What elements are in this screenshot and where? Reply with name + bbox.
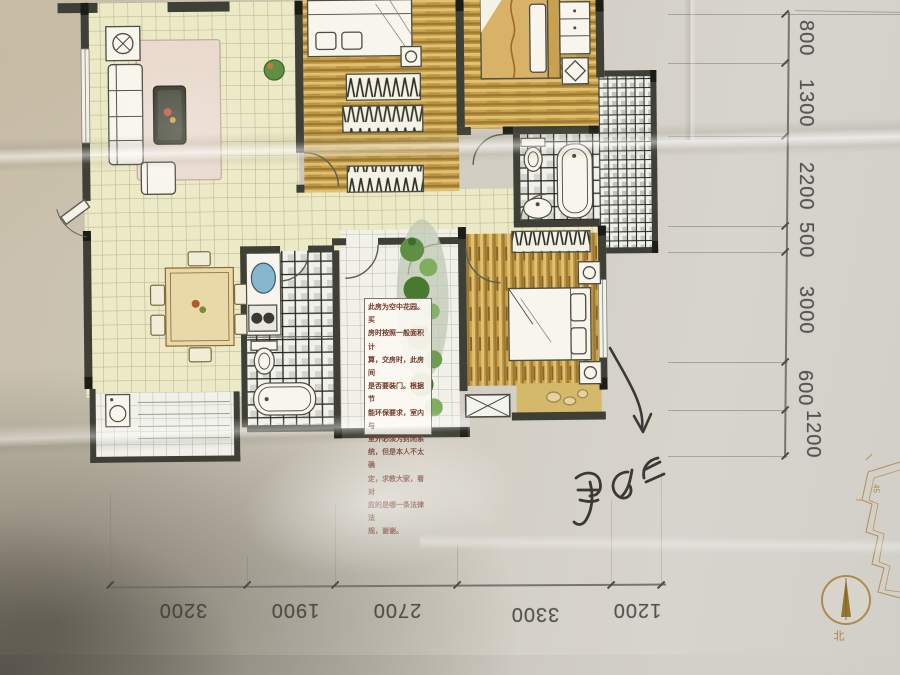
pillow: [571, 294, 586, 321]
kitchen-sink: [251, 263, 275, 293]
pillow: [342, 32, 362, 49]
compass-and-keyplan: 45 北: [810, 440, 900, 675]
dim-bottom-1200: 1200: [602, 598, 672, 621]
dim-right-600: 600: [793, 366, 816, 410]
toilet: [524, 147, 542, 171]
dim-right-1300: 1300: [794, 70, 817, 136]
nightstand: [578, 262, 600, 284]
floorplan-photo: 此房为空中花园。买 房时按照一般面积计 算，交房时，此房间 是否要装门。根据节 …: [0, 0, 900, 675]
dim-bottom-1900: 1900: [260, 598, 330, 621]
right-balcony-floor: [598, 76, 658, 250]
crease-vertical: [684, 0, 696, 140]
key-plan: [856, 454, 900, 598]
compass: 北: [822, 576, 870, 641]
hand-drawn-arrow: [610, 348, 642, 428]
pillow: [316, 32, 336, 49]
handwritten-annotation: [540, 320, 690, 540]
bathroom-sink: [524, 198, 552, 218]
annotation-note: 此房为空中花园。买 房时按照一般面积计 算，交房时，此房间 是否要装门。根据节 …: [364, 298, 432, 435]
toilet-tank: [521, 138, 545, 146]
bedroom-b-furniture: [480, 0, 590, 85]
headboard: [547, 0, 560, 78]
pillow: [530, 4, 547, 72]
dim-right-3000: 3000: [794, 268, 817, 352]
wardrobe: [343, 105, 423, 132]
keyplan-label: 45: [872, 484, 881, 493]
wardrobe: [347, 165, 423, 192]
wardrobe: [512, 231, 590, 253]
dim-bottom-2700: 2700: [362, 598, 432, 621]
dim-right-2200: 2200: [794, 146, 817, 226]
dim-right-500: 500: [794, 220, 817, 260]
sofa: [108, 64, 143, 164]
handwritten-characters: [574, 458, 664, 524]
compass-north-label: 北: [832, 630, 845, 641]
armchair: [141, 162, 175, 194]
bathtub-lower: [253, 383, 315, 416]
bottom-edge-shade: [0, 655, 900, 675]
dim-bottom-3200: 3200: [148, 598, 218, 621]
plant: [264, 60, 284, 80]
nightstand: [401, 46, 421, 66]
dim-right-800: 800: [794, 12, 817, 64]
toilet: [254, 348, 274, 374]
dining-table: [165, 267, 234, 346]
wardrobe: [346, 73, 420, 100]
dim-bottom-3300: 3300: [500, 602, 570, 625]
